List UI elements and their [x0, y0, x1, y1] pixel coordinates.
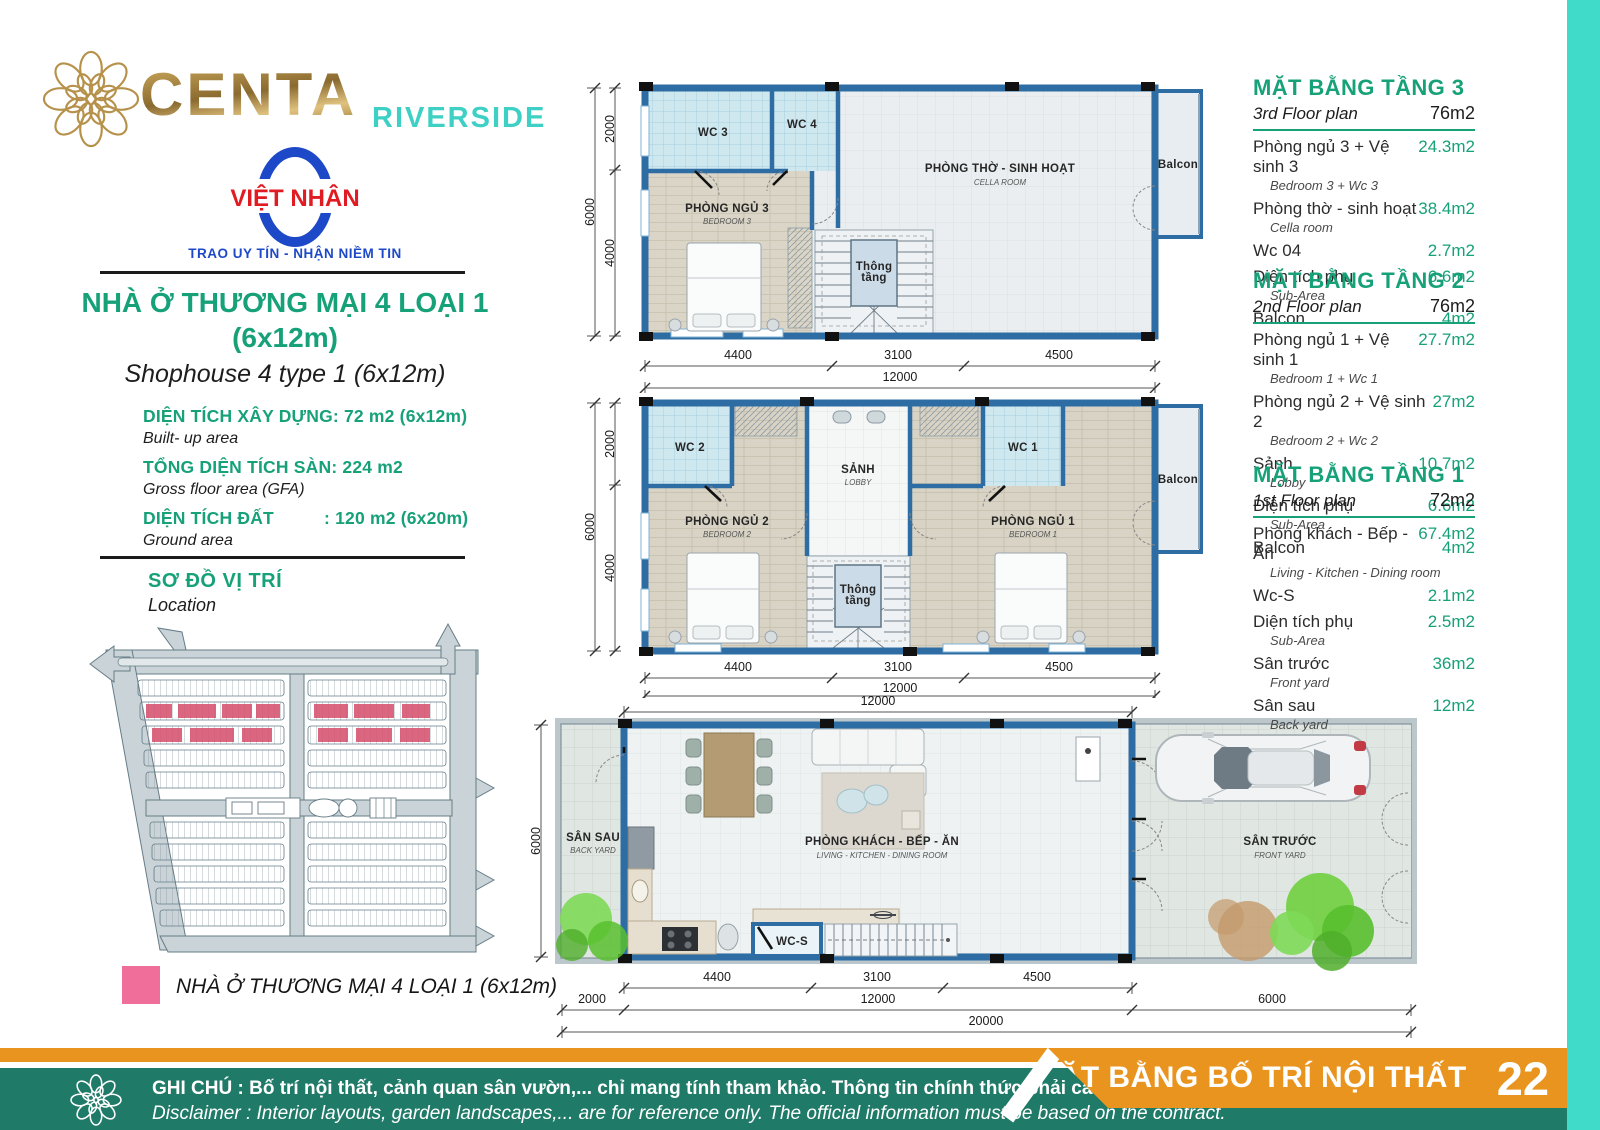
svg-text:tầng: tầng [861, 272, 886, 284]
svg-text:WC 1: WC 1 [1008, 442, 1038, 454]
vietnhan-logo: VIỆT NHÂN [230, 146, 360, 248]
spec-built-area: DIỆN TÍCH XÂY DỰNG: 72 m2 (6x12m) [143, 406, 503, 427]
brand-suffix: RIVERSIDE [372, 102, 546, 135]
footer-banner: MẶT BẰNG BỐ TRÍ NỘI THẤT 22 [1030, 1048, 1567, 1108]
svg-text:Balcon: Balcon [1158, 474, 1198, 486]
svg-text:12000: 12000 [883, 370, 918, 384]
svg-text:WC 4: WC 4 [787, 119, 817, 131]
svg-text:BEDROOM 1: BEDROOM 1 [1009, 530, 1057, 539]
table-row: Phòng ngủ 3 + Vệ sinh 324.3m2Bedroom 3 +… [1253, 137, 1475, 193]
divider-line [100, 556, 465, 559]
svg-text:4000: 4000 [603, 554, 617, 582]
spec-list: DIỆN TÍCH XÂY DỰNG: 72 m2 (6x12m) Built-… [143, 406, 503, 559]
svg-text:2000: 2000 [603, 115, 617, 143]
car [1156, 732, 1370, 804]
svg-text:3100: 3100 [884, 660, 912, 674]
svg-text:6000: 6000 [583, 513, 597, 541]
svg-text:6000: 6000 [583, 198, 597, 226]
svg-text:LIVING - KITCHEN - DINING ROOM: LIVING - KITCHEN - DINING ROOM [817, 851, 948, 860]
svg-text:WC-S: WC-S [776, 936, 808, 948]
svg-text:4500: 4500 [1045, 348, 1073, 362]
table-title: MẶT BẰNG TẦNG 3 [1253, 75, 1475, 101]
spec-built-area-en: Built- up area [143, 430, 503, 448]
table-row: Sân trước36m2Front yard [1253, 654, 1475, 690]
table-row: Phòng ngủ 1 + Vệ sinh 127.7m2Bedroom 1 +… [1253, 330, 1475, 386]
floor-plan-2: Thông tầng WC 2 WC 1 SẢNH [575, 393, 1230, 698]
product-title: NHÀ Ở THƯƠNG MẠI 4 LOẠI 1 [70, 287, 500, 319]
site-location-map [88, 620, 508, 958]
table-row: Sân sau12m2Back yard [1253, 696, 1475, 732]
location-subtitle: Location [148, 595, 216, 616]
stairwell: Thông tầng [815, 230, 933, 333]
svg-text:3100: 3100 [863, 970, 891, 984]
dining-table [686, 733, 772, 817]
svg-text:4500: 4500 [1045, 660, 1073, 674]
brand-tagline: TRAO UY TÍN - NHẬN NIỀM TIN [100, 246, 490, 261]
page-number: 22 [1497, 1051, 1549, 1106]
spec-ground-area: DIỆN TÍCH ĐẤT: 120 m2 (6x20m) [143, 508, 503, 529]
svg-text:WC 3: WC 3 [698, 127, 728, 139]
svg-text:20000: 20000 [969, 1014, 1004, 1028]
floor-plan-3: Thông tầng WC 3 WC 4 PHÒNG NGỦ 3 BEDROOM… [575, 78, 1230, 393]
svg-text:4400: 4400 [703, 970, 731, 984]
stairwell: Thông tầng [807, 556, 910, 648]
svg-text:12000: 12000 [861, 694, 896, 708]
table-row: Wc-S2.1m2 [1253, 586, 1475, 606]
divider-line [100, 271, 465, 274]
svg-text:4000: 4000 [603, 239, 617, 267]
svg-text:WC 2: WC 2 [675, 442, 705, 454]
table-subtitle-row: 2nd Floor plan76m2 [1253, 294, 1475, 324]
svg-text:CELLA ROOM: CELLA ROOM [974, 178, 1026, 187]
floor-plan-1: 12000 [520, 693, 1440, 1043]
table-subtitle-row: 3rd Floor plan76m2 [1253, 101, 1475, 131]
footer-banner-title: MẶT BẰNG BỐ TRÍ NỘI THẤT [1033, 1061, 1467, 1095]
location-title: SƠ ĐỒ VỊ TRÍ [148, 570, 282, 593]
table-subtitle-row: 1st Floor plan72m2 [1253, 488, 1475, 518]
spec-ground-area-en: Ground area [143, 532, 503, 550]
svg-text:2000: 2000 [603, 430, 617, 458]
svg-text:BACK YARD: BACK YARD [570, 846, 616, 855]
svg-text:tầng: tầng [845, 595, 870, 607]
svg-text:SẢNH: SẢNH [841, 463, 875, 476]
brand-name: CENTA [140, 60, 357, 129]
svg-text:4400: 4400 [724, 660, 752, 674]
svg-text:PHÒNG THỜ - SINH HOẠT: PHÒNG THỜ - SINH HOẠT [925, 162, 1075, 175]
footer-flower-logo [70, 1074, 122, 1126]
legend-label: NHÀ Ở THƯƠNG MẠI 4 LOẠI 1 (6x12m) [176, 975, 557, 999]
spec-gfa: TỔNG DIỆN TÍCH SÀN: 224 m2 [143, 457, 503, 478]
svg-text:3100: 3100 [884, 348, 912, 362]
table-row: Phòng thờ - sinh hoạt38.4m2Cella room [1253, 199, 1475, 235]
legend-color-swatch [122, 966, 160, 1004]
product-title-size: (6x12m) [70, 322, 500, 354]
svg-text:Balcon: Balcon [1158, 159, 1198, 171]
svg-text:FRONT YARD: FRONT YARD [1254, 851, 1306, 860]
table-row: Phòng ngủ 2 + Vệ sinh 227m2Bedroom 2 + W… [1253, 392, 1475, 448]
svg-text:12000: 12000 [861, 992, 896, 1006]
svg-text:BEDROOM 2: BEDROOM 2 [703, 530, 752, 539]
table-row: Phòng khách - Bếp - Ăn67.4m2Living - Kit… [1253, 524, 1475, 580]
area-table-floor-1: MẶT BẰNG TẦNG 11st Floor plan72m2Phòng k… [1253, 462, 1475, 734]
spec-gfa-en: Gross floor area (GFA) [143, 481, 503, 499]
table-title: MẶT BẰNG TẦNG 2 [1253, 268, 1475, 294]
product-subtitle: Shophouse 4 type 1 (6x12m) [70, 360, 500, 389]
svg-text:BEDROOM 3: BEDROOM 3 [703, 217, 752, 226]
brochure-page: CENTA RIVERSIDE VIỆT NHÂN TRAO UY TÍN - … [0, 0, 1600, 1130]
table-title: MẶT BẰNG TẦNG 1 [1253, 462, 1475, 488]
svg-text:PHÒNG NGỦ 3: PHÒNG NGỦ 3 [685, 202, 769, 215]
svg-text:LOBBY: LOBBY [845, 478, 872, 487]
svg-text:SÂN TRƯỚC: SÂN TRƯỚC [1243, 835, 1316, 848]
right-accent-strip [1567, 0, 1600, 1130]
table-row: Wc 042.7m2 [1253, 241, 1475, 261]
svg-text:4500: 4500 [1023, 970, 1051, 984]
table-row: Diện tích phụ2.5m2Sub-Area [1253, 612, 1475, 648]
svg-text:PHÒNG NGỦ 2: PHÒNG NGỦ 2 [685, 515, 769, 528]
stairs [825, 924, 957, 956]
wc-s-room: WC-S [753, 924, 821, 956]
svg-text:4400: 4400 [724, 348, 752, 362]
svg-text:6000: 6000 [1258, 992, 1286, 1006]
vietnhan-wordmark: VIỆT NHÂN [230, 184, 359, 212]
svg-text:6000: 6000 [529, 827, 543, 855]
svg-text:2000: 2000 [578, 992, 606, 1006]
svg-text:PHÒNG NGỦ 1: PHÒNG NGỦ 1 [991, 515, 1075, 528]
svg-text:PHÒNG KHÁCH - BẾP - ĂN: PHÒNG KHÁCH - BẾP - ĂN [805, 835, 959, 848]
centa-flower-logo [42, 50, 140, 148]
svg-text:SÂN SAU: SÂN SAU [566, 831, 620, 844]
